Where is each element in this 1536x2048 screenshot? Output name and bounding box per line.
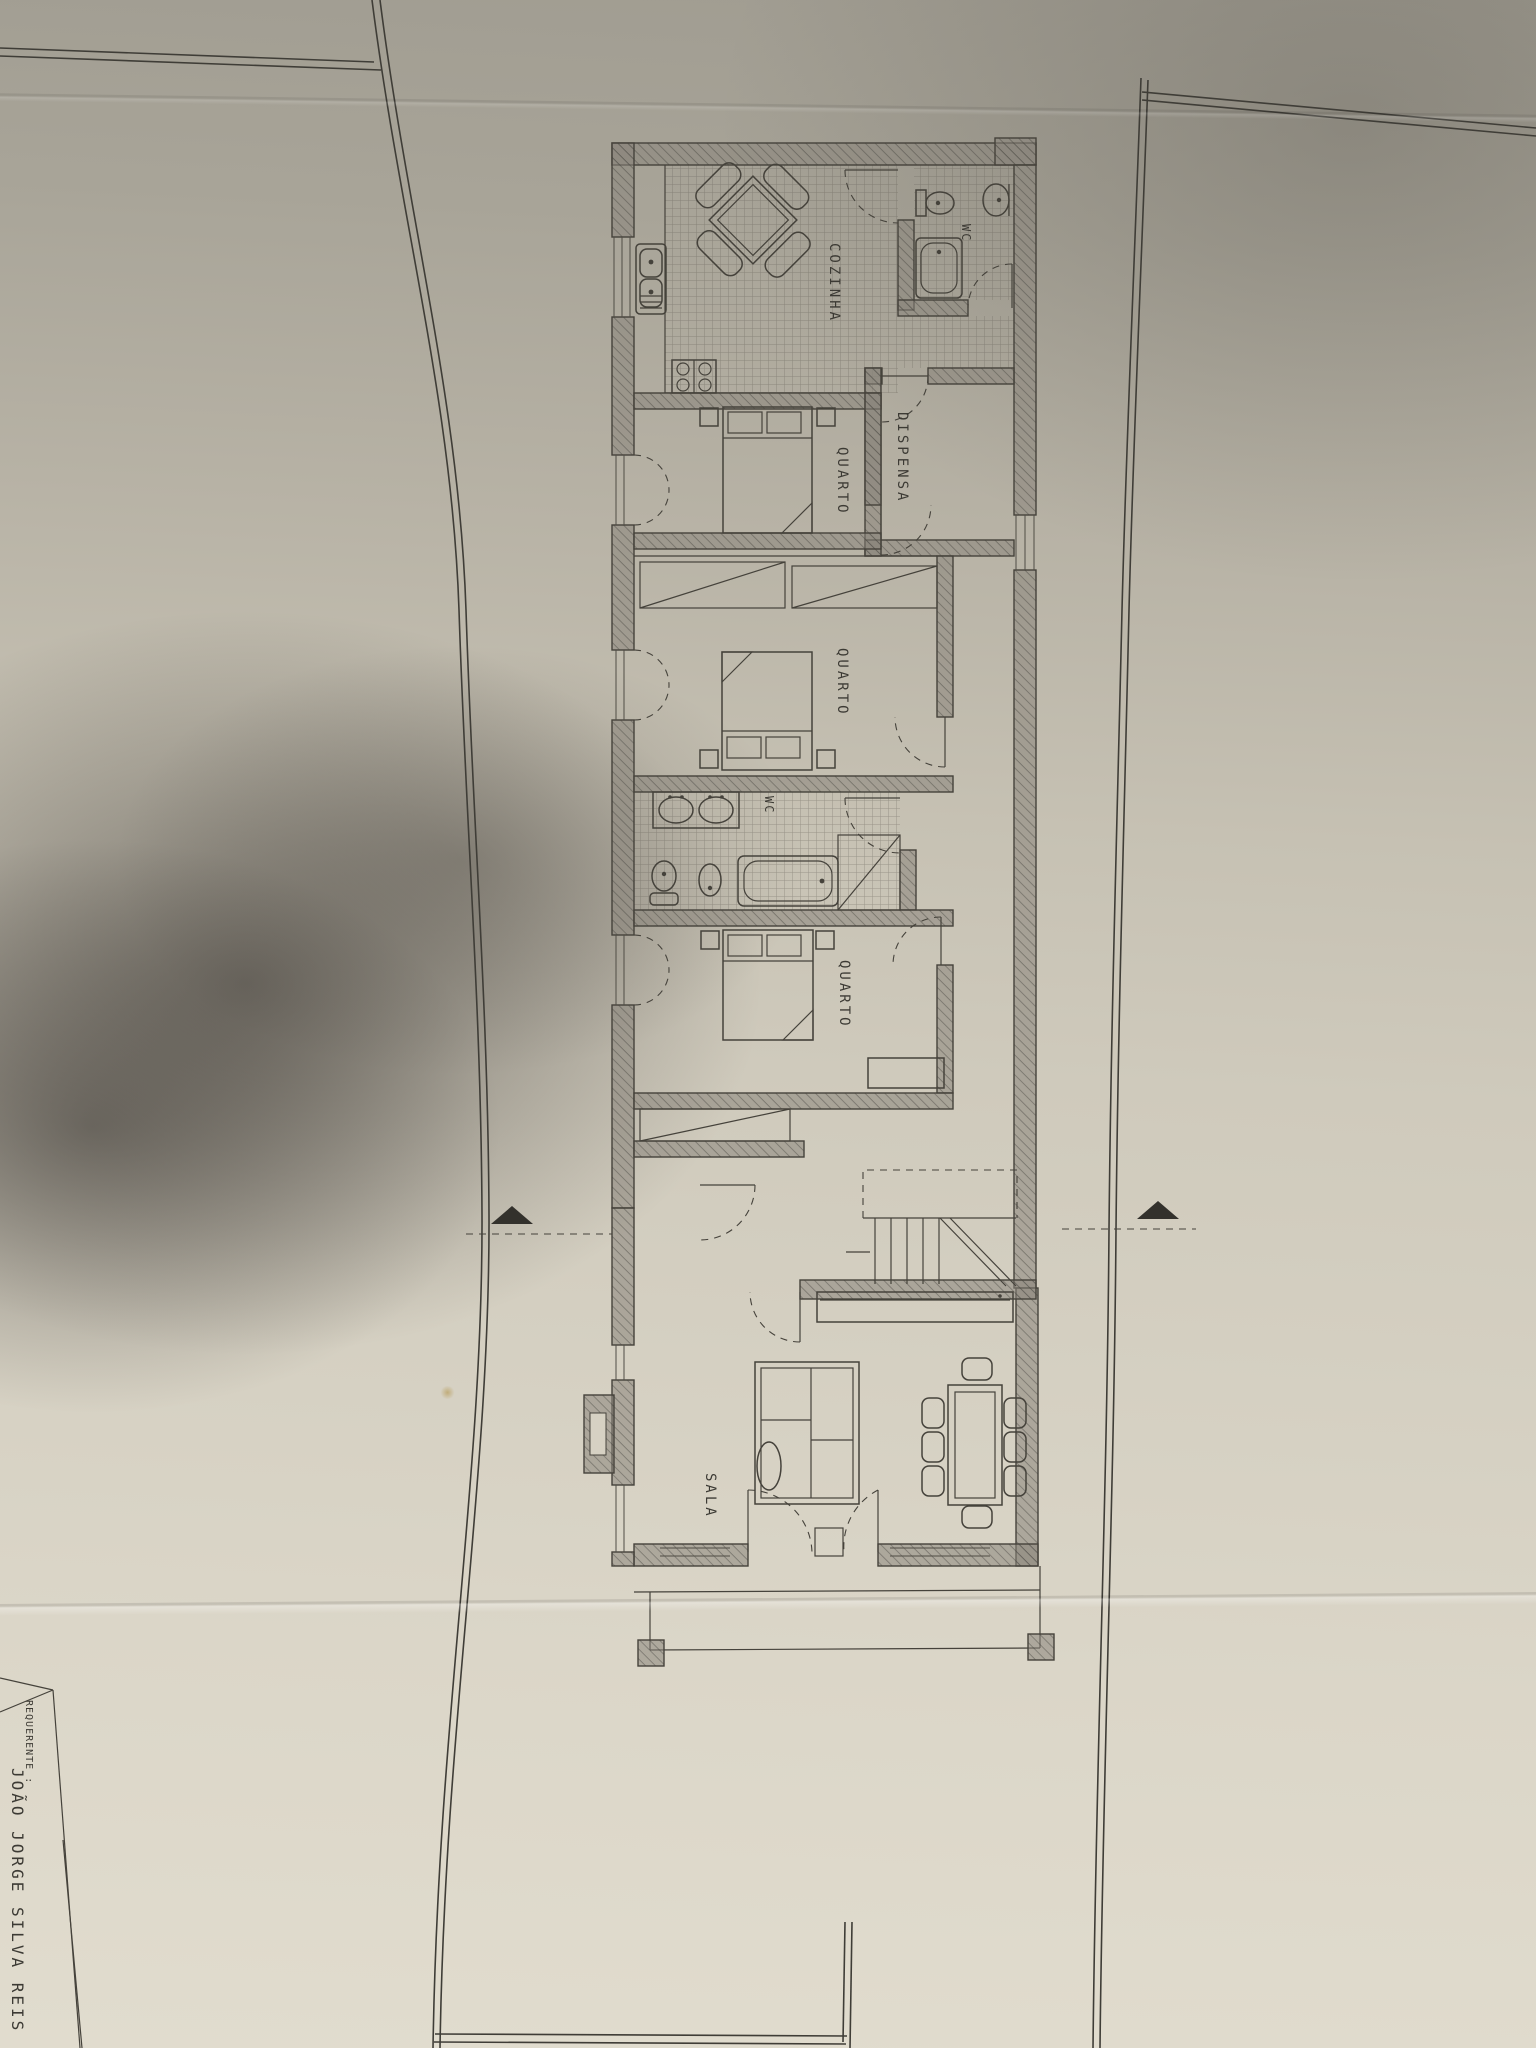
terrace-column-right xyxy=(1028,1634,1054,1660)
wardrobe-quarto2-icon xyxy=(634,556,937,608)
closet-hall-icon xyxy=(640,1109,790,1141)
terrace-column-left xyxy=(638,1640,664,1666)
window-quarto2-left xyxy=(616,650,669,720)
terrace xyxy=(634,1566,1054,1666)
entry-hall-tile-floor xyxy=(898,316,1014,368)
stair-opening-dashed xyxy=(863,1170,1017,1218)
window-quarto3-left xyxy=(616,935,669,1005)
kitchen-sink-icon xyxy=(636,244,666,314)
label-cozinha: COZINHA xyxy=(826,243,842,323)
door-sala xyxy=(750,1292,800,1342)
street-line-bottom xyxy=(434,1922,852,2048)
title-block: REQUERENTE : JOÃO JORGE SILVA REIS xyxy=(0,1678,82,2048)
sofa-icon xyxy=(755,1362,859,1504)
stairs-icon xyxy=(846,1170,1017,1286)
street-line-top-left xyxy=(0,48,381,70)
bed-quarto1-icon xyxy=(700,407,835,533)
kitchen-tile-floor xyxy=(665,165,898,393)
label-quarto2: QUARTO xyxy=(834,648,850,717)
door-quarto2 xyxy=(895,717,945,767)
door-hall xyxy=(700,1185,755,1240)
section-marker-right xyxy=(1062,1201,1196,1229)
window-corridor-right xyxy=(1016,515,1034,570)
label-wc-middle: WC xyxy=(762,796,776,814)
section-marker-left xyxy=(466,1206,612,1234)
bed-quarto2-icon xyxy=(700,652,835,770)
window-kitchen-left xyxy=(614,237,630,317)
floor-plan-photo: COZINHA WC DISPENSA QUARTO QUARTO WC QUA… xyxy=(0,0,1536,2048)
label-sala: SALA xyxy=(702,1473,718,1519)
label-quarto1: QUARTO xyxy=(834,447,850,516)
floor-plan-drawing: COZINHA WC DISPENSA QUARTO QUARTO WC QUA… xyxy=(0,0,1536,2048)
desk-quarto3-icon xyxy=(868,1058,944,1088)
dining-table-icon xyxy=(922,1358,1026,1528)
paper-stain xyxy=(440,1386,455,1399)
label-wc-top: WC xyxy=(959,224,973,242)
label-dispensa: DISPENSA xyxy=(894,412,910,503)
label-quarto3: QUARTO xyxy=(836,960,852,1029)
window-quarto1-left xyxy=(616,455,669,525)
applicant-name: JOÃO JORGE SILVA REIS xyxy=(8,1768,27,2033)
site-boundary-left xyxy=(372,0,489,2048)
site-boundary-right xyxy=(1093,78,1148,2048)
bed-quarto3-icon xyxy=(701,930,834,1040)
